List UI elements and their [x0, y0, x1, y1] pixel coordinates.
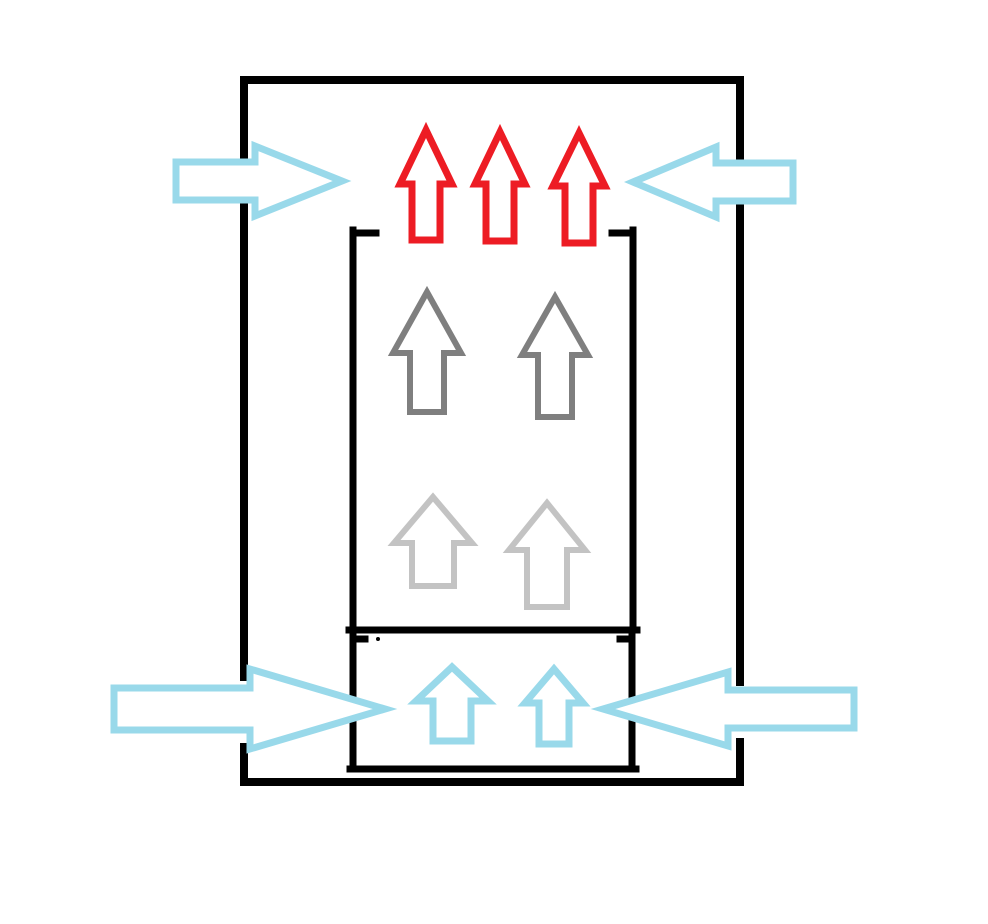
- stray-dot-mark: [376, 637, 380, 641]
- diagram-canvas: [0, 0, 988, 924]
- airflow-diagram: [0, 0, 988, 924]
- top-outflow-arrows: [400, 130, 605, 243]
